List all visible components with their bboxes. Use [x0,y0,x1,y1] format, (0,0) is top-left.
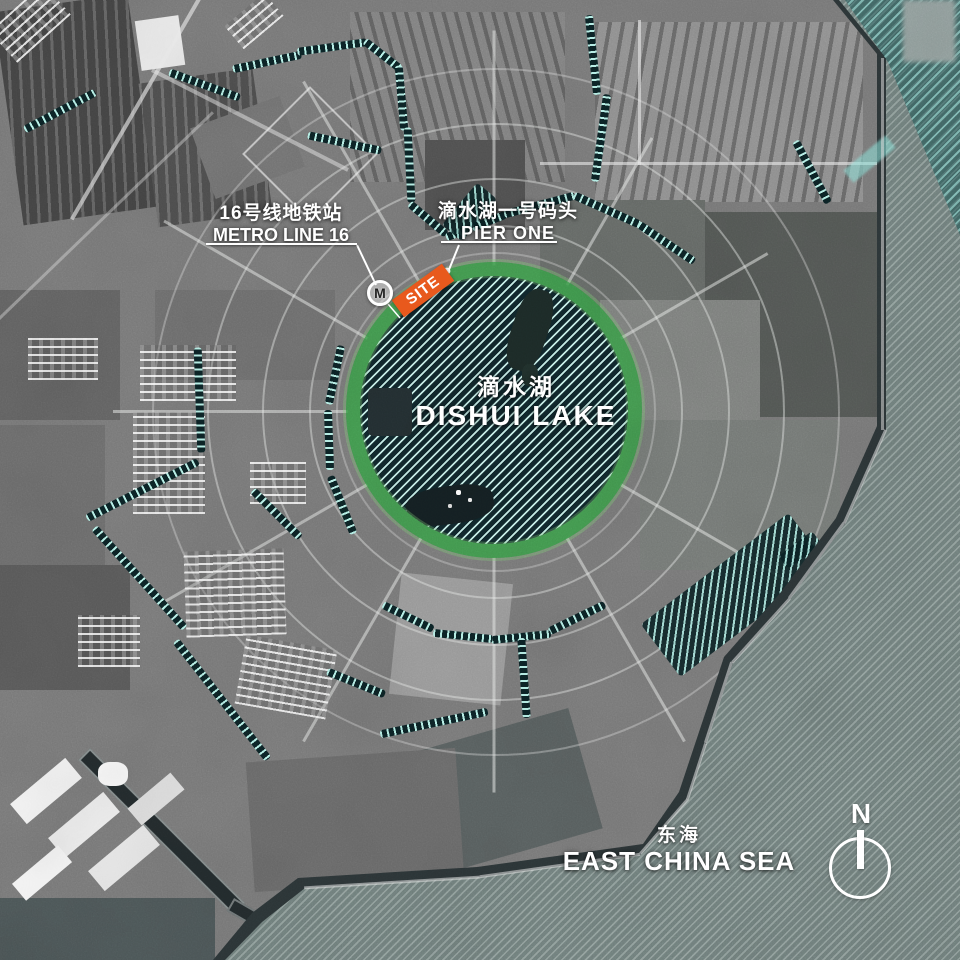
site-location-map: 16号线地铁站 METRO LINE 16 滴水湖一号码头 PIER ONE S… [0,0,960,960]
warehouse [10,758,82,824]
dishui-lake-label: 滴水湖 DISHUI LAKE [416,374,617,433]
cloud [903,0,955,62]
dishui-lake-label-zh: 滴水湖 [416,374,617,400]
pier-label-underline [441,241,557,243]
metro-icon: M [367,280,393,306]
pier-one-label-zh: 滴水湖一号码头 [438,201,578,223]
building-cluster [224,0,283,49]
warehouse [88,825,160,891]
terrain-patch [0,425,105,570]
east-china-sea-label-en: EAST CHINA SEA [563,847,796,877]
radial-road [493,558,496,793]
metro-label-underline [206,243,357,245]
pier-one-label: 滴水湖一号码头 PIER ONE [438,201,578,244]
compass-north-letter: N [851,798,871,830]
canal-hatch [232,51,302,73]
road [638,20,641,165]
metro-station-label-zh: 16号线地铁站 [213,203,349,225]
metro-station-label: 16号线地铁站 METRO LINE 16 [213,203,349,246]
building-cluster [28,338,98,380]
terrain-patch [0,898,215,960]
compass-needle [857,830,864,869]
building-cluster [140,345,236,401]
building-cluster [235,635,338,720]
coast-road [881,58,884,430]
metro-icon-letter: M [374,285,386,301]
east-china-sea-label: 东海 EAST CHINA SEA [563,825,796,877]
warehouse [12,845,72,900]
east-china-sea-label-zh: 东海 [563,825,796,847]
building-cluster [78,615,140,667]
warehouse [98,762,128,786]
dishui-lake-label-en: DISHUI LAKE [416,400,617,432]
road [540,162,885,165]
building-cluster [184,548,287,637]
